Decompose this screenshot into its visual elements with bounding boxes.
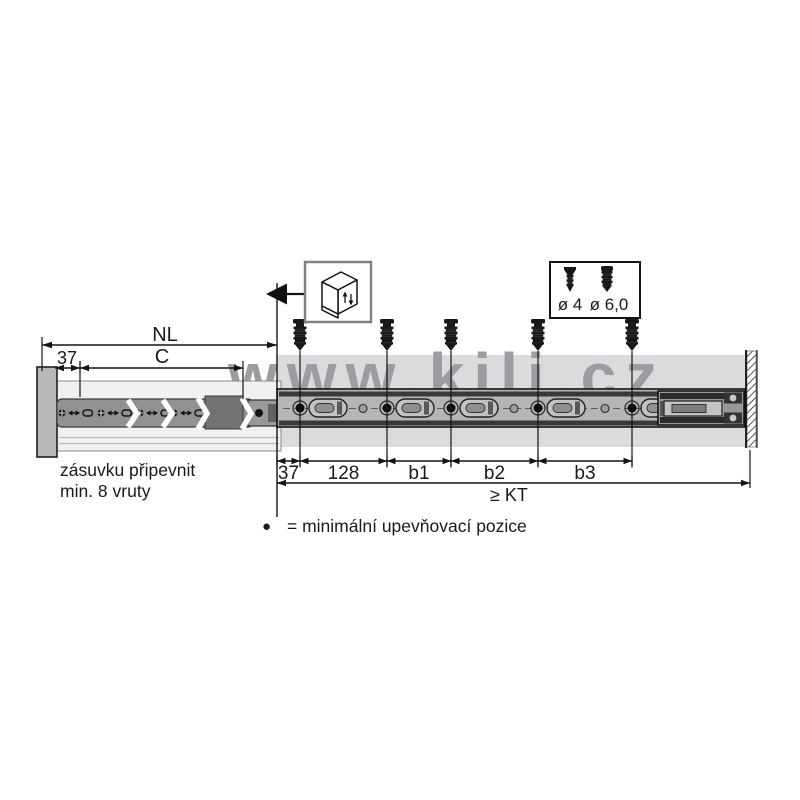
min-fixing-position-dot	[255, 409, 263, 417]
dimension-c-label: C	[145, 346, 179, 368]
legend-text: = minimální upevňovací pozice	[287, 517, 527, 537]
dimension-seg2-label: 128	[300, 463, 387, 484]
screw-small-diameter-label: ø 4	[550, 295, 590, 314]
drawer-assembly	[37, 367, 281, 457]
dimension-seg5-label: b3	[538, 463, 632, 484]
cabinet-back-wall	[746, 350, 757, 448]
screw-large-diameter-label: ø 6,0	[585, 295, 633, 314]
dimension-seg4-label: b2	[451, 463, 538, 484]
dimension-front-offset-label: 37	[52, 348, 82, 368]
direction-arrow-icon	[266, 284, 305, 305]
dimension-kt-label: ≥ KT	[473, 485, 545, 505]
dimension-nl-label: NL	[140, 324, 190, 346]
cabinet-rail	[277, 389, 745, 427]
drawer-front-panel	[37, 367, 57, 457]
dimension-seg3-label: b1	[387, 463, 451, 484]
drawer-note-line1: zásuvku připevnit	[60, 461, 195, 481]
diagram-canvas: www.kili.cz	[0, 0, 800, 800]
technical-drawing: www.kili.cz	[0, 0, 800, 800]
cabinet-icon	[305, 262, 371, 322]
rail-rear-bracket	[658, 391, 744, 425]
drawer-note-line2: min. 8 vruty	[60, 482, 150, 502]
legend-bullet-icon: ●	[262, 519, 271, 536]
drawer-rail-rear-section	[205, 396, 243, 429]
